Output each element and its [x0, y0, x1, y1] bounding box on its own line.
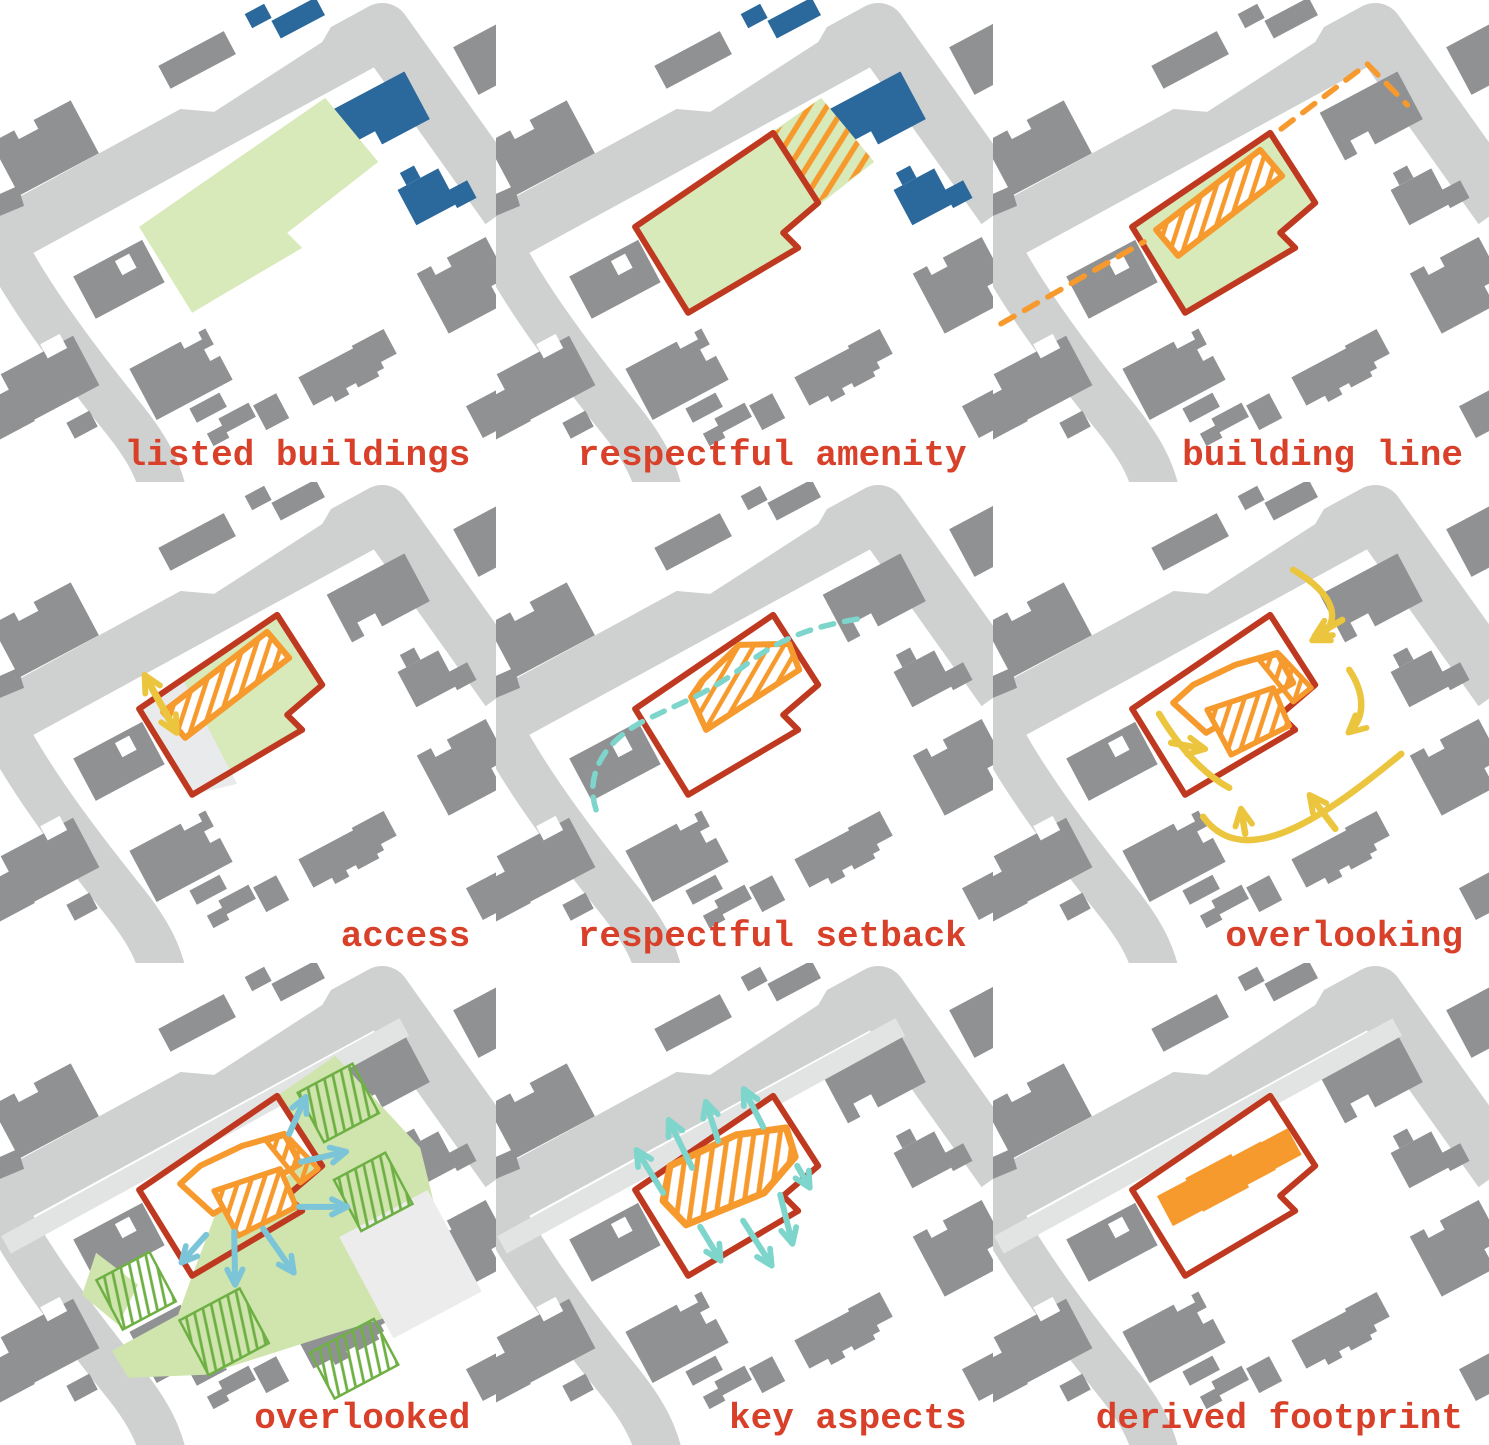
- map-derived-footprint: [993, 963, 1489, 1445]
- map-respectful-amenity: [496, 0, 992, 482]
- panel-listed-buildings: listed buildings: [0, 0, 496, 482]
- panel-caption: building line: [1182, 438, 1463, 474]
- panel-access: access: [0, 482, 496, 964]
- panel-caption: overlooked: [254, 1401, 470, 1437]
- panel-caption: overlooking: [1225, 919, 1463, 955]
- panel-key-aspects: key aspects: [496, 963, 992, 1445]
- map-key-aspects: [496, 963, 992, 1445]
- panel-respectful-setback: respectful setback: [496, 482, 992, 964]
- map-building-line: [993, 0, 1489, 482]
- panel-caption: key aspects: [729, 1401, 967, 1437]
- panel-caption: access: [341, 919, 471, 955]
- panel-caption: listed buildings: [125, 438, 471, 474]
- site-analysis-diagram-grid: listed buildings respectful amenity buil…: [0, 0, 1489, 1445]
- map-access: [0, 482, 496, 964]
- panel-overlooked: overlooked: [0, 963, 496, 1445]
- panel-building-line: building line: [993, 0, 1489, 482]
- panel-respectful-amenity: respectful amenity: [496, 0, 992, 482]
- map-overlooking: [993, 482, 1489, 964]
- map-listed-buildings: [0, 0, 496, 482]
- panel-derived-footprint: derived footprint: [993, 963, 1489, 1445]
- panel-caption: respectful setback: [578, 919, 967, 955]
- panel-caption: derived footprint: [1096, 1401, 1463, 1437]
- map-overlooked: [0, 963, 496, 1445]
- panel-caption: respectful amenity: [578, 438, 967, 474]
- panel-overlooking: overlooking: [993, 482, 1489, 964]
- map-respectful-setback: [496, 482, 992, 964]
